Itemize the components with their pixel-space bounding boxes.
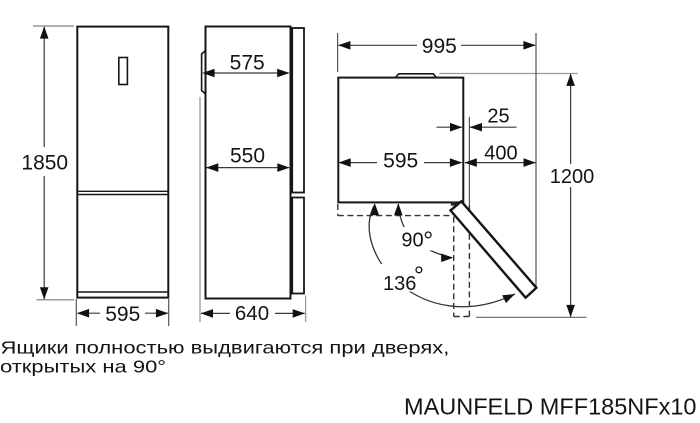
svg-text:400: 400 xyxy=(484,142,517,164)
svg-text:995: 995 xyxy=(422,35,457,58)
svg-text:136: 136 xyxy=(383,273,416,295)
svg-text:575: 575 xyxy=(230,51,265,74)
svg-text:MAUNFELD MFF185NFx10: MAUNFELD MFF185NFx10 xyxy=(404,394,697,420)
svg-text:25: 25 xyxy=(487,106,509,128)
svg-text:1200: 1200 xyxy=(550,166,595,188)
svg-text:1850: 1850 xyxy=(21,152,68,175)
svg-text:595: 595 xyxy=(105,303,140,326)
svg-text:Ящики полностью выдвигаются пр: Ящики полностью выдвигаются при дверях, xyxy=(1,338,450,358)
svg-text:640: 640 xyxy=(235,302,269,325)
svg-text:открытых на 90°: открытых на 90° xyxy=(0,357,166,377)
svg-text:90: 90 xyxy=(401,230,423,252)
svg-text:595: 595 xyxy=(383,149,418,172)
svg-text:550: 550 xyxy=(230,144,265,167)
